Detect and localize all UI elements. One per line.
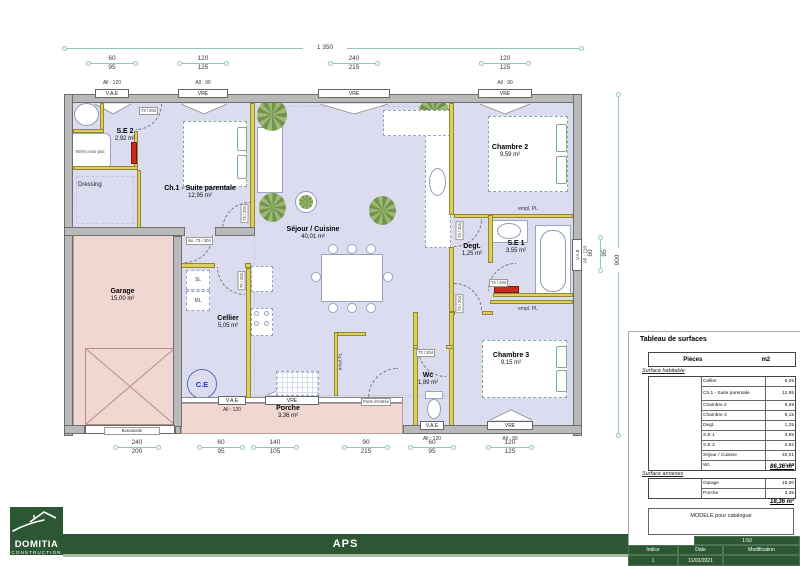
dim-right-over: 60: [587, 247, 595, 259]
dim-under: 215: [350, 448, 382, 455]
dim-over: 240: [121, 439, 153, 446]
door-tag-degt: 73 / 204: [456, 221, 464, 240]
chair: [366, 303, 376, 313]
pillow: [556, 156, 567, 184]
logo-sub: CONSTRUCTION: [10, 550, 63, 556]
room-name: Chambre 2: [480, 144, 540, 152]
washbasin-bowl: [497, 223, 521, 239]
row-value: 40,01: [766, 451, 795, 460]
dim-bottom-2: 60 95: [205, 439, 237, 455]
floor-plan-sheet: 73 / 204 73 / 204 iso. 73 / 204 70 / 204…: [0, 0, 800, 566]
door-tag-ch1: 73 / 204: [241, 204, 249, 223]
dim-top-total: 1 350: [303, 44, 347, 51]
towel-radiator-se2: [131, 142, 137, 164]
dishwasher: [276, 371, 319, 396]
row-name: Cellier: [702, 377, 766, 386]
garage-door-tag: Basculante: [104, 427, 160, 435]
row-name: Chambre 3: [702, 411, 766, 420]
chair: [383, 272, 393, 282]
partition-chambre2-south: [454, 214, 573, 218]
dim-right-under: 95: [601, 247, 609, 259]
partition-wc-west: [413, 312, 418, 427]
entry-door-tag: Porte d'entrée: [361, 398, 391, 406]
dim-under: 125: [489, 64, 521, 71]
window-top-vre-2: VRE: [318, 89, 390, 98]
window-right-vae: V.A.E: [572, 239, 582, 271]
room-label-ch1: Ch.1 - Suite parentale 12,95 m²: [148, 185, 252, 200]
table-row: S.E 22,92: [702, 441, 795, 451]
room-area: 9,15 m²: [480, 360, 542, 367]
partition-entry-placard-v: [334, 332, 338, 396]
room-area: 12,95 m²: [148, 193, 252, 200]
room-name: Cellier: [198, 315, 258, 323]
chair: [328, 303, 338, 313]
door-tag-chambre3: 73 / 204: [456, 294, 464, 313]
room-area: 5,05 m²: [198, 323, 258, 330]
chair: [328, 244, 338, 254]
fridge: [251, 266, 273, 292]
window-top-vae: V.A.E: [95, 89, 129, 98]
header-pieces: Pièces: [649, 357, 737, 363]
date-header: Date: [678, 545, 723, 555]
room-label-wc: Wc 1,89 m²: [408, 372, 448, 387]
dim-over: 90: [350, 439, 382, 446]
placard-label-chambre2: empl. PL: [508, 206, 548, 212]
partition-chambre3-placard: [490, 300, 573, 304]
washbasin-corner: [74, 103, 99, 126]
section-habitable: Surface habitable: [642, 368, 685, 374]
dim-top-3: 240 215: [338, 55, 370, 71]
plant: [257, 99, 287, 131]
door-tag-cellier: 70 / 204: [238, 271, 246, 290]
dim-top-2: 120 125: [187, 55, 219, 71]
dim-top-1: 60 95: [96, 55, 128, 71]
phase-bar: APS: [63, 534, 628, 554]
house-icon: [10, 507, 63, 535]
row-value: 1,25: [766, 421, 795, 430]
chair: [347, 244, 357, 254]
row-name: Ch.1 - Suite parentale: [702, 387, 766, 400]
surface-table-habitable: Cellier5,05 Ch.1 - Suite parentale12,95 …: [648, 376, 796, 471]
modification-header: Modification: [723, 545, 800, 555]
pillow: [556, 346, 567, 368]
room-name: S.E 1: [496, 240, 536, 248]
partition-wc-east: [449, 312, 454, 427]
row-value: 15,00: [766, 479, 795, 488]
panel-border: [628, 331, 629, 566]
lintel-bottom-2: All : 90: [487, 436, 533, 442]
room-area: 3,55 m²: [496, 248, 536, 255]
table-row: Cellier5,05: [702, 377, 795, 387]
bathtub-inner: [540, 230, 566, 292]
burner: [264, 321, 269, 326]
sofa: [257, 127, 283, 193]
row-value: 5,05: [766, 377, 795, 386]
window-bottom-vre: VRE: [487, 421, 533, 430]
row-name: Chambre 2: [702, 401, 766, 410]
partition-wc-north-b: [446, 345, 454, 349]
table-row: S.E 13,55: [702, 431, 795, 441]
kitchen-counter-top: [383, 110, 451, 136]
kitchen-sink: [429, 168, 446, 196]
table-spacer: [649, 479, 702, 498]
bed-chambre3: [482, 340, 567, 398]
water-heater: C.E: [187, 369, 217, 399]
company-logo: DOMITIA CONSTRUCTION: [10, 507, 63, 555]
dim-over: 120: [187, 55, 219, 62]
partition-chambre2-west: [449, 103, 454, 215]
lintel-top-3: All : 90: [478, 80, 532, 86]
partition-entry-placard-h: [334, 332, 366, 336]
window-porch-vre: VRE: [265, 396, 319, 405]
date-value: 11/03/2021: [678, 555, 723, 566]
wall-garage-top-left: [64, 227, 185, 236]
room-name: Wc: [408, 372, 448, 380]
annexes-total: 18,36 m²: [700, 499, 794, 505]
dim-over: 240: [338, 55, 370, 62]
room-label-dressing: Dressing: [78, 182, 102, 188]
table-row: Séjour / Cuisine40,01: [702, 451, 795, 461]
dim-under: 95: [416, 448, 448, 455]
dim-under: 95: [205, 448, 237, 455]
row-name: Porche: [702, 489, 766, 498]
row-value: 12,95: [766, 387, 795, 400]
plant: [369, 196, 396, 225]
row-value: 3,36: [766, 489, 795, 498]
wall-left: [64, 94, 73, 436]
window-swing-mark: [479, 103, 531, 115]
window-top-vre-3: VRE: [478, 89, 532, 98]
table-row: Chambre 39,15: [702, 411, 795, 421]
room-name: S.E 2: [99, 128, 151, 136]
row-value: 2,92: [766, 441, 795, 450]
garage-door-swing: [85, 348, 175, 425]
table-row: Degt.1,25: [702, 421, 795, 431]
partition-cellier-east: [246, 268, 251, 398]
chair: [366, 244, 376, 254]
window-top-vre-1: VRE: [178, 89, 228, 98]
logo-brand: DOMITIA: [10, 540, 63, 550]
dim-bottom-3: 140 105: [259, 439, 291, 455]
partition-cellier-north-a: [181, 263, 215, 268]
dim-under: 200: [121, 448, 153, 455]
window-swing-mark: [489, 409, 533, 421]
dim-bottom-1: 240 200: [121, 439, 153, 455]
partition-se2-south: [73, 166, 138, 170]
plant: [259, 193, 286, 222]
dim-under: 125: [494, 448, 526, 455]
room-area: 9,59 m²: [480, 152, 540, 159]
room-name: Degt.: [453, 243, 491, 251]
room-label-degt: Degt. 1,25 m²: [453, 243, 491, 258]
room-area: 15,00 m²: [95, 296, 150, 303]
chair: [311, 272, 321, 282]
dim-right-total: 900: [614, 248, 622, 272]
room-label-chambre3: Chambre 3 9,15 m²: [480, 352, 542, 367]
pillow: [237, 127, 247, 151]
room-area: 2,92 m²: [99, 136, 151, 143]
row-name: S.E 2: [702, 441, 766, 450]
row-name: S.E 1: [702, 431, 766, 440]
lintel-porch-vae: All : 120: [210, 407, 254, 413]
dim-under: 125: [187, 64, 219, 71]
dim-over: 60: [96, 55, 128, 62]
header-unit: m2: [737, 357, 795, 363]
washer-box: ML: [186, 291, 210, 311]
dryer-box: SL: [186, 270, 210, 290]
door-tag-wc: 73 / 204: [416, 349, 435, 357]
room-name: Garage: [95, 288, 150, 296]
lintel-top-2: All : 90: [178, 80, 228, 86]
door-tag-se1: 73 / 204: [489, 279, 508, 287]
dim-under: 215: [338, 64, 370, 71]
room-name: Ch.1 - Suite parentale: [148, 185, 252, 193]
phase-label: APS: [333, 538, 359, 550]
table-row: Chambre 29,59: [702, 401, 795, 411]
dim-top-4: 120 125: [489, 55, 521, 71]
room-area: 3,36 m²: [265, 413, 311, 420]
room-name: Séjour / Cuisine: [273, 226, 353, 234]
section-annexes: Surface annexes: [642, 471, 683, 477]
dim-over: 140: [259, 439, 291, 446]
dim-under: 95: [96, 64, 128, 71]
row-value: 9,15: [766, 411, 795, 420]
table-row: Garage15,00: [702, 479, 795, 489]
room-label-se1: S.E 1 3,55 m²: [496, 240, 536, 255]
row-value: 3,55: [766, 431, 795, 440]
dining-table: [321, 254, 383, 302]
room-name: Porche: [265, 405, 311, 413]
table-row: Porche3,36: [702, 489, 795, 498]
room-label-garage: Garage 15,00 m²: [95, 288, 150, 303]
dim-over: 120: [489, 55, 521, 62]
partition-se1-south: [493, 293, 573, 297]
room-label-sejour: Séjour / Cuisine 40,01 m²: [273, 226, 353, 241]
chair: [347, 303, 357, 313]
door-tag-se2: 73 / 204: [139, 107, 158, 115]
row-name: Garage: [702, 479, 766, 488]
dim-bottom-4: 90 215: [350, 439, 382, 455]
partition-degt-south-b: [482, 311, 493, 315]
room-label-porche: Porche 3,36 m²: [265, 405, 311, 420]
placard-label-chambre3: empl. PL: [508, 306, 548, 312]
habitable-total: 86,36 m²: [700, 464, 794, 470]
catalog-note: MODELE pour catalogue: [648, 508, 794, 535]
pillow: [556, 370, 567, 392]
window-swing-mark: [180, 103, 228, 115]
wall-garage-top-right: [215, 227, 255, 236]
lintel-top-1: All : 120: [95, 80, 129, 86]
toilet-bowl: [427, 399, 441, 419]
scale-cell: 1:50: [694, 536, 800, 545]
dim-over: 60: [205, 439, 237, 446]
partition-dressing-east: [137, 170, 141, 228]
table-spacer: [649, 377, 702, 470]
placard-label-entry: empl.PL: [339, 348, 346, 376]
panel-border-top: [628, 331, 800, 332]
wall-garage-east: [173, 236, 182, 427]
room-label-se2: S.E 2 2,92 m²: [99, 128, 151, 143]
room-area: 1,89 m²: [408, 380, 448, 387]
pillow: [556, 124, 567, 152]
partition-ch1-east: [250, 103, 255, 228]
surface-table-title: Tableau de surfaces: [640, 336, 707, 343]
indice-value: 1: [628, 555, 678, 566]
towel-radiator-se1: [494, 286, 519, 293]
window-swing-mark: [319, 103, 389, 115]
surface-table-annexes: Garage15,00 Porche3,36: [648, 478, 796, 499]
surface-table-header: Pièces m2: [648, 352, 796, 367]
pillow: [237, 155, 247, 179]
room-name: Chambre 3: [480, 352, 542, 360]
room-label-cellier: Cellier 5,05 m²: [198, 315, 258, 330]
room-area: 40,01 m²: [273, 234, 353, 241]
row-name: Degt.: [702, 421, 766, 430]
modification-value: [723, 555, 800, 566]
room-label-chambre2: Chambre 2 9,59 m²: [480, 144, 540, 159]
window-porch-vae: V.A.E: [218, 396, 246, 405]
window-bottom-vae: V.A.E: [420, 421, 444, 430]
door-tag-garage-iso: iso. 73 / 204: [186, 237, 213, 245]
row-name: Séjour / Cuisine: [702, 451, 766, 460]
indice-header: Indice: [628, 545, 678, 555]
toilet-tank: [425, 391, 443, 399]
plant-small: [299, 195, 313, 209]
burner: [264, 311, 269, 316]
dim-under: 105: [259, 448, 291, 455]
row-value: 9,59: [766, 401, 795, 410]
table-row: Ch.1 - Suite parentale12,95: [702, 387, 795, 401]
phase-bar-shadow: [63, 554, 628, 557]
lintel-bottom-1: All : 120: [410, 436, 454, 442]
room-area: 1,25 m²: [453, 251, 491, 258]
wall-bottom-garage-left: [64, 425, 85, 434]
